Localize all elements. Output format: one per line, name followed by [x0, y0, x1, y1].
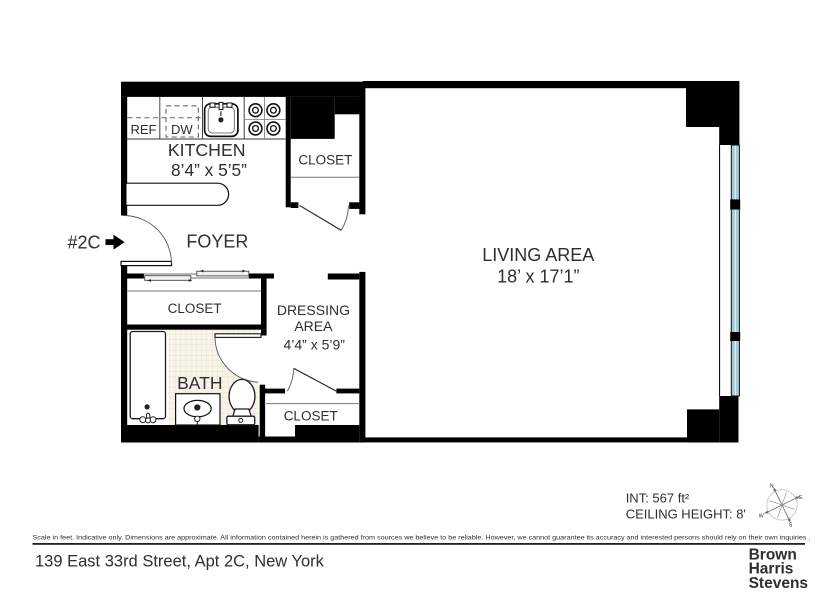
svg-text:BATH: BATH: [177, 373, 222, 393]
svg-text:DRESSING: DRESSING: [277, 302, 350, 318]
svg-text:E: E: [799, 495, 803, 501]
svg-text:CLOSET: CLOSET: [168, 301, 222, 316]
svg-text:139 East 33rd Street, Apt 2C,: 139 East 33rd Street, Apt 2C, New York: [35, 553, 325, 571]
svg-text:CLOSET: CLOSET: [284, 409, 338, 424]
svg-text:REF: REF: [131, 122, 157, 137]
svg-text:N: N: [770, 484, 774, 490]
svg-text:#2C: #2C: [67, 233, 100, 253]
svg-text:DW: DW: [171, 122, 193, 137]
svg-text:CLOSET: CLOSET: [298, 153, 352, 168]
svg-text:KITCHEN: KITCHEN: [168, 140, 246, 160]
svg-text:8’4” x 5’5”: 8’4” x 5’5”: [171, 160, 247, 180]
svg-text:LIVING AREA: LIVING AREA: [482, 245, 594, 265]
svg-text:INT: 567 ft²: INT: 567 ft²: [626, 491, 690, 506]
svg-text:18’ x 17’1”: 18’ x 17’1”: [497, 267, 579, 287]
svg-text:4’4” x 5’9”: 4’4” x 5’9”: [283, 337, 345, 353]
svg-text:FOYER: FOYER: [186, 231, 248, 251]
svg-text:AREA: AREA: [294, 318, 333, 334]
svg-text:W: W: [759, 514, 764, 520]
svg-text:S: S: [789, 523, 793, 529]
svg-text:CEILING HEIGHT: 8': CEILING HEIGHT: 8': [626, 507, 746, 522]
svg-text:Scale in feet. Indicative only: Scale in feet. Indicative only. Dimensio…: [33, 535, 811, 542]
svg-text:Stevens: Stevens: [749, 575, 808, 592]
